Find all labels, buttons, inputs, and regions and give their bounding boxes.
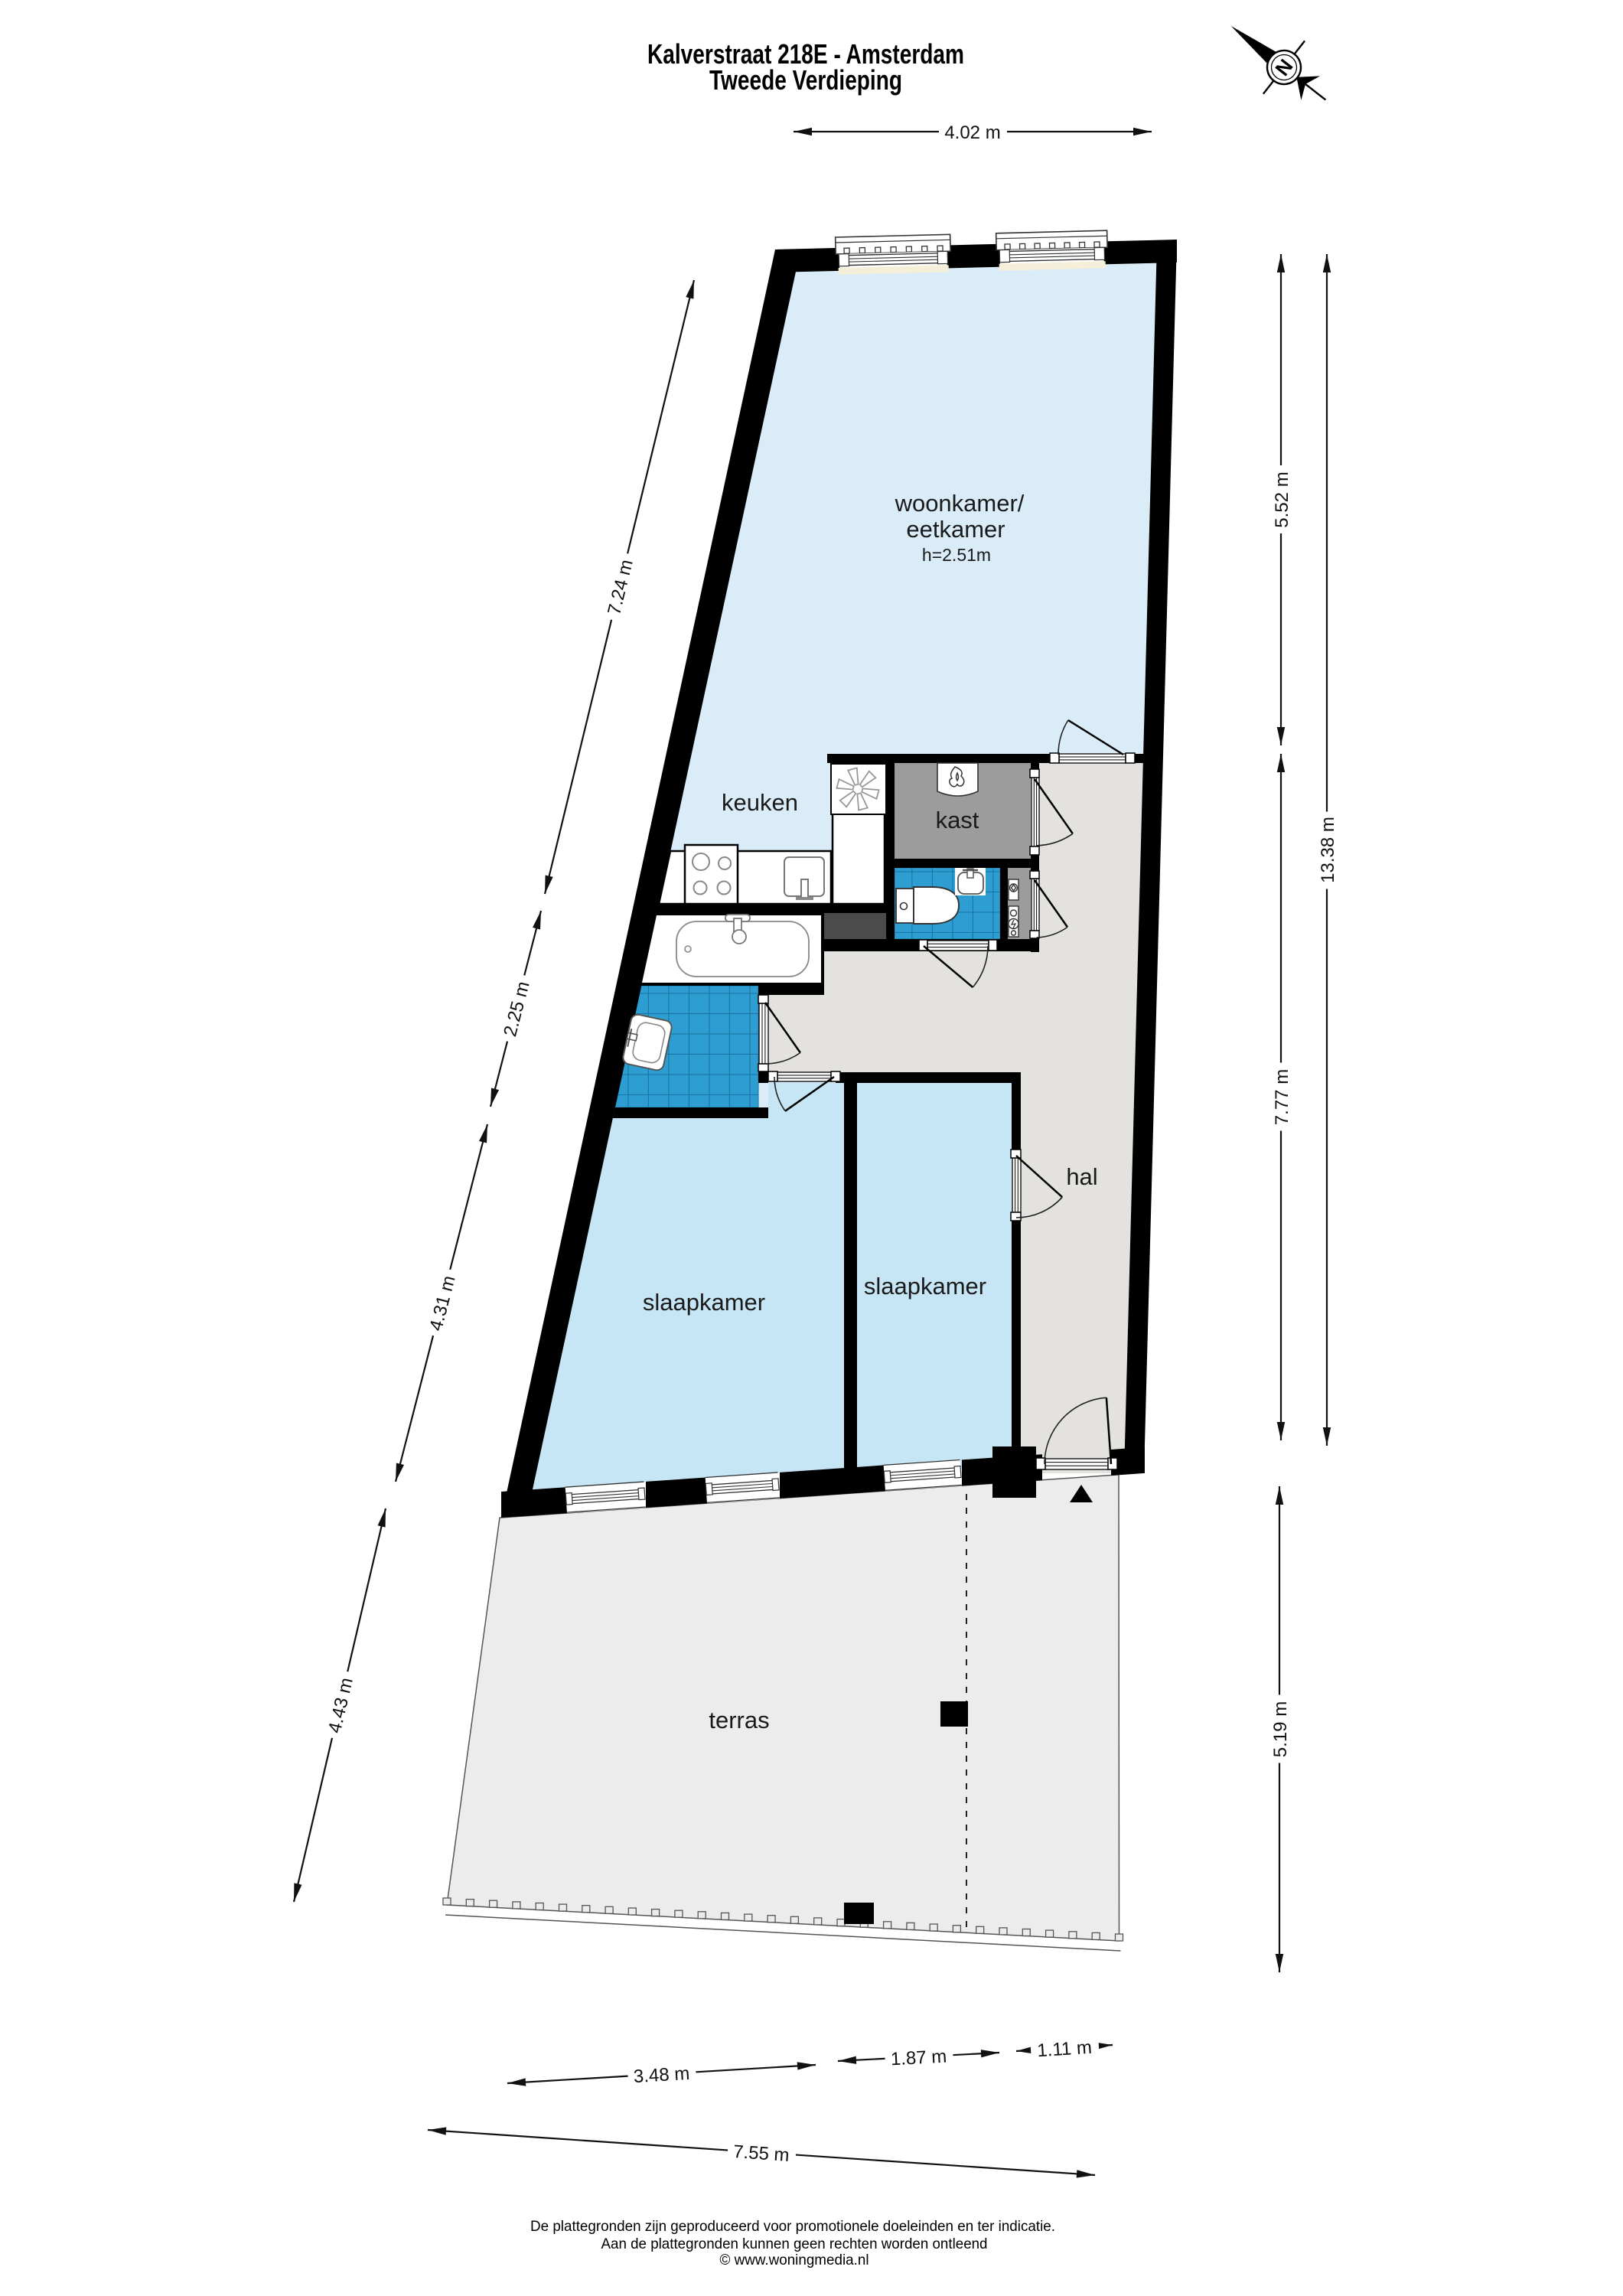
svg-text:7.55 m: 7.55 m — [732, 2141, 790, 2166]
svg-text:1.11 m: 1.11 m — [1037, 2037, 1093, 2061]
svg-text:5.19 m: 5.19 m — [1270, 1701, 1291, 1757]
svg-text:terras: terras — [709, 1707, 769, 1733]
svg-text:© www.woningmedia.nl: © www.woningmedia.nl — [720, 2252, 869, 2268]
svg-text:13.38 m: 13.38 m — [1318, 817, 1338, 883]
svg-text:De plattegronden zijn geproduc: De plattegronden zijn geproduceerd voor … — [530, 2218, 1055, 2235]
svg-text:h=2.51m: h=2.51m — [922, 545, 991, 565]
svg-text:5.52 m: 5.52 m — [1272, 471, 1292, 527]
svg-text:7.77 m: 7.77 m — [1272, 1069, 1292, 1125]
svg-text:eetkamer: eetkamer — [906, 516, 1005, 543]
svg-text:Aan de plattegronden kunnen ge: Aan de plattegronden kunnen geen rechten… — [601, 2236, 988, 2252]
svg-text:1.87 m: 1.87 m — [890, 2047, 947, 2070]
svg-text:keuken: keuken — [722, 789, 798, 816]
svg-text:Tweede Verdieping: Tweede Verdieping — [709, 64, 902, 96]
svg-text:4.02 m: 4.02 m — [944, 122, 1000, 143]
svg-text:3.48 m: 3.48 m — [633, 2063, 690, 2087]
svg-text:kast: kast — [936, 807, 979, 833]
svg-text:woonkamer/: woonkamer/ — [895, 490, 1025, 517]
svg-text:slaapkamer: slaapkamer — [643, 1289, 765, 1316]
svg-text:slaapkamer: slaapkamer — [864, 1273, 986, 1300]
svg-text:hal: hal — [1066, 1163, 1097, 1190]
